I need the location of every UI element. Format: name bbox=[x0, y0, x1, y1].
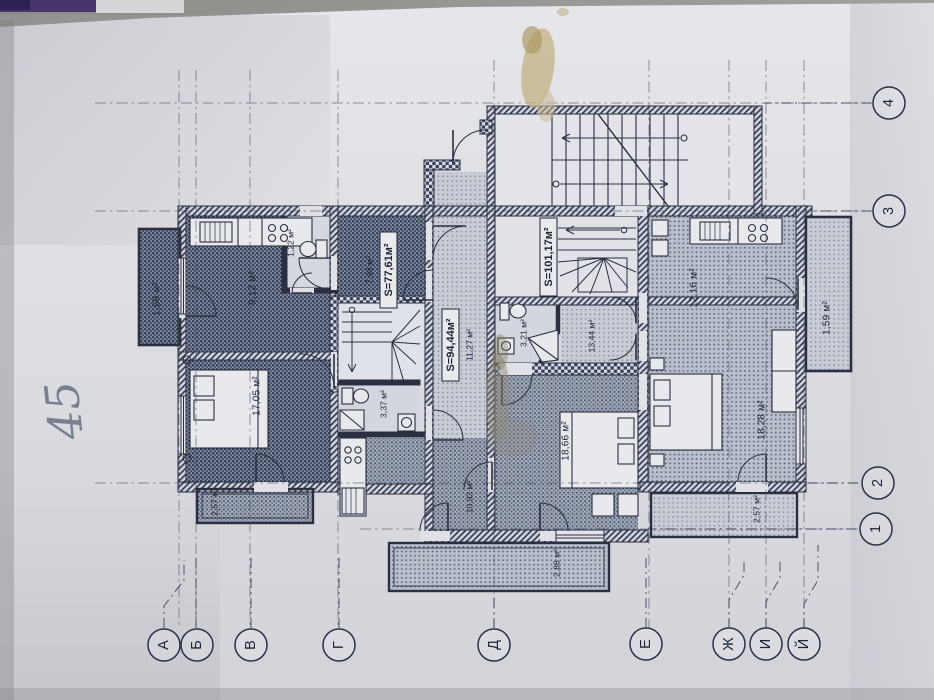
axis-number: 2 bbox=[870, 479, 886, 487]
room-area-label: 3,37 м² bbox=[378, 390, 388, 418]
room-area-label: 1,22 м² bbox=[285, 229, 295, 257]
axis-number: 3 bbox=[881, 207, 897, 215]
bed-apt3b bbox=[650, 358, 722, 466]
room-area-label: 2,88 м² bbox=[551, 549, 561, 577]
room-area-label: 18,66 м² bbox=[561, 421, 572, 461]
axis-letter: Б bbox=[189, 640, 205, 650]
room-area-label: 7,98 м² bbox=[364, 256, 374, 284]
room-area-label: 11,27 м² bbox=[464, 329, 474, 361]
washer-icon bbox=[398, 414, 415, 431]
room-area-label: 12,16 м² bbox=[689, 268, 700, 308]
room-area-label: 9,12 м² bbox=[248, 271, 259, 305]
axis-letter: Ж bbox=[721, 637, 737, 651]
axis-letter: Е bbox=[638, 639, 654, 649]
room-area-label: 1,59 м² bbox=[822, 301, 833, 335]
axis-letter: Д bbox=[486, 640, 502, 650]
axis-letter: Г bbox=[331, 641, 347, 649]
axis-letter: И bbox=[758, 639, 774, 649]
room-area-label: 18,28 м² bbox=[757, 400, 768, 440]
axis-number: 1 bbox=[868, 525, 884, 533]
apartment2-area-label: S=94,44м² bbox=[445, 318, 457, 371]
apartment1-area-label: S=77,61м² bbox=[383, 243, 395, 296]
room-area-label: 17,05 м² bbox=[252, 376, 263, 416]
axis-letter: Й bbox=[794, 639, 812, 649]
axis-letter: А bbox=[156, 640, 172, 650]
bed-apt3a bbox=[560, 412, 638, 488]
sink-icon bbox=[342, 488, 364, 514]
handwritten-note: 45 bbox=[34, 378, 94, 443]
floorplan-canvas: S=77,61м² S=94,44м² S=101,17м² 1,59 м² 9… bbox=[0, 0, 934, 700]
room-area-label: 13,44 м² bbox=[586, 320, 596, 353]
room-area-label: 2,57 м² bbox=[209, 488, 219, 516]
floorplan-photo: S=77,61м² S=94,44м² S=101,17м² 1,59 м² 9… bbox=[0, 0, 934, 700]
apartment3-area-label: S=101,17м² bbox=[543, 227, 555, 287]
axis-letter: В bbox=[243, 640, 259, 650]
room-area-label: 3,21 м² bbox=[518, 319, 528, 347]
room-area-label: 2,57 м² bbox=[751, 495, 761, 523]
axis-number: 4 bbox=[881, 99, 897, 107]
room-area-label: 1,59 м² bbox=[152, 282, 163, 316]
room-area-label: 10,93 м² bbox=[464, 481, 474, 514]
